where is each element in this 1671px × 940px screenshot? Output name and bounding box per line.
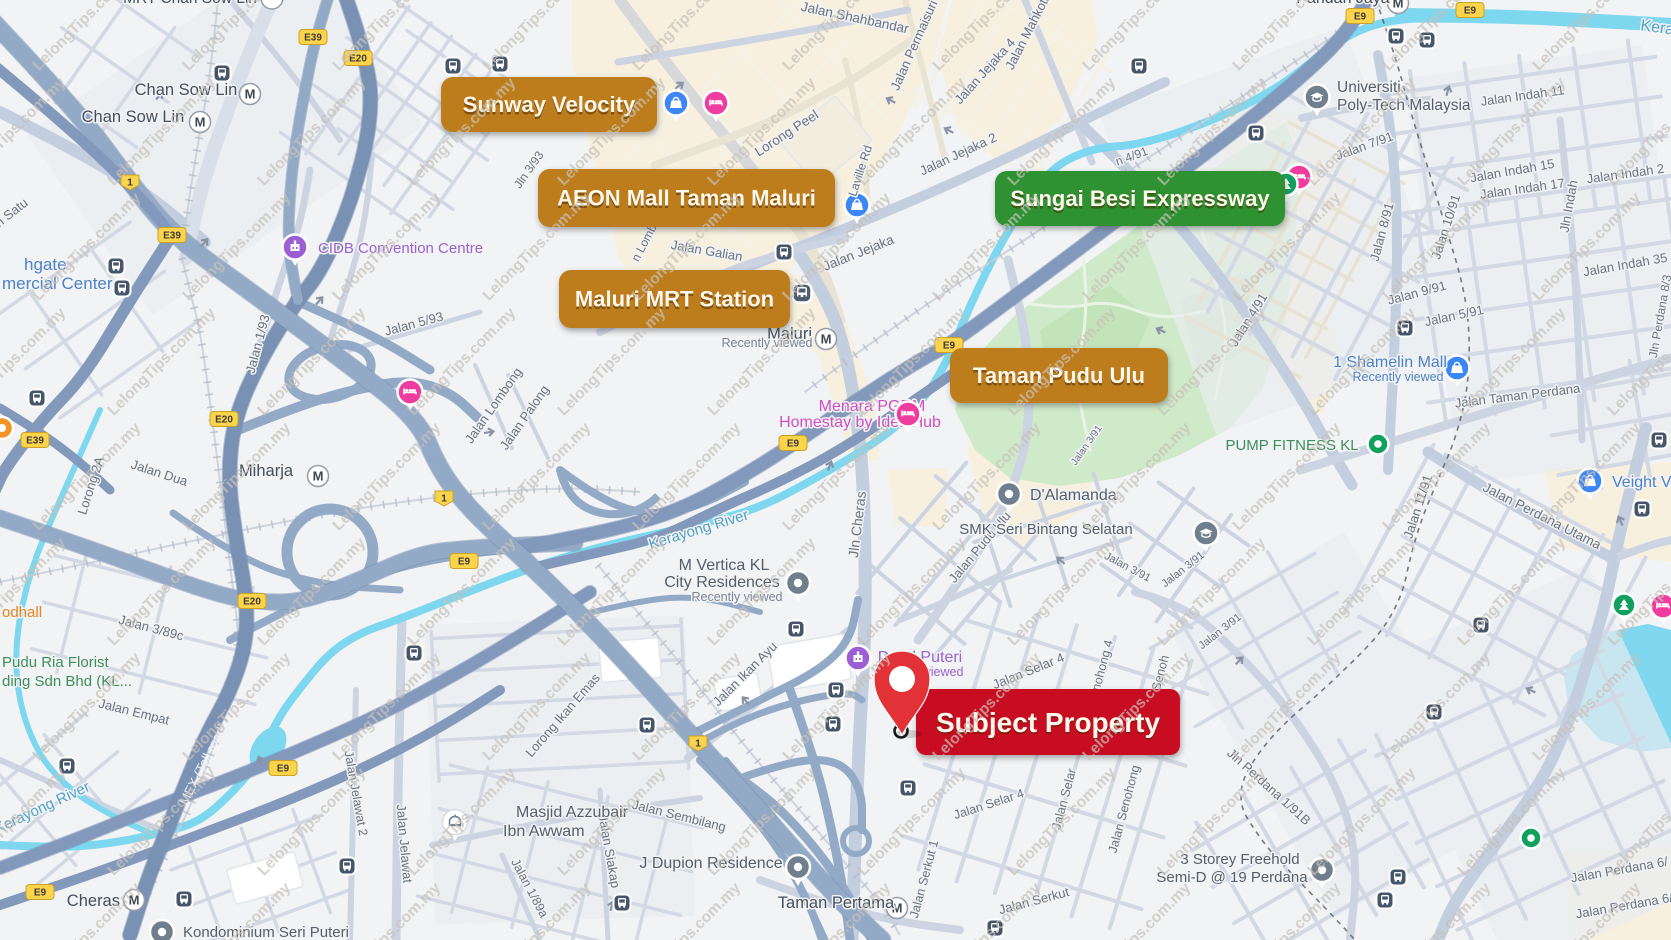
svg-text:E39: E39 (163, 231, 181, 242)
svg-text:PUMP FITNESS KL: PUMP FITNESS KL (1225, 437, 1358, 454)
svg-text:1: 1 (441, 492, 447, 504)
svg-text:M: M (195, 115, 206, 130)
svg-text:AEON Mall Taman Maluri: AEON Mall Taman Maluri (557, 186, 816, 211)
svg-text:M: M (245, 87, 256, 102)
svg-text:M: M (1393, 0, 1404, 11)
svg-text:M: M (821, 332, 832, 347)
svg-text:3 Storey Freehold: 3 Storey Freehold (1180, 851, 1299, 868)
svg-text:E9: E9 (458, 557, 471, 568)
svg-text:E9: E9 (1354, 12, 1367, 23)
svg-text:E9: E9 (1464, 6, 1477, 17)
svg-text:E39: E39 (26, 436, 44, 447)
svg-text:Sungai Besi Expressway: Sungai Besi Expressway (1010, 186, 1270, 211)
svg-text:Pudu Ria Florist: Pudu Ria Florist (2, 654, 110, 671)
svg-text:E9: E9 (277, 764, 290, 775)
svg-text:E39: E39 (304, 33, 322, 44)
svg-text:1: 1 (695, 737, 701, 749)
svg-text:Veight Va: Veight Va (1612, 474, 1671, 491)
svg-text:M Vertica KL: M Vertica KL (679, 557, 770, 574)
svg-text:M: M (313, 469, 324, 484)
svg-text:E20: E20 (215, 415, 233, 426)
svg-text:E9: E9 (787, 439, 800, 450)
svg-text:Ibn Awwam: Ibn Awwam (503, 823, 585, 840)
svg-text:1: 1 (127, 176, 133, 188)
svg-text:E9: E9 (943, 341, 956, 352)
svg-text:Maluri MRT Station: Maluri MRT Station (575, 287, 774, 312)
svg-text:Recently viewed: Recently viewed (1352, 370, 1443, 384)
svg-text:Kondominium Seri Puteri: Kondominium Seri Puteri (183, 924, 349, 940)
svg-text:E9: E9 (34, 888, 47, 899)
svg-text:E20: E20 (243, 597, 261, 608)
